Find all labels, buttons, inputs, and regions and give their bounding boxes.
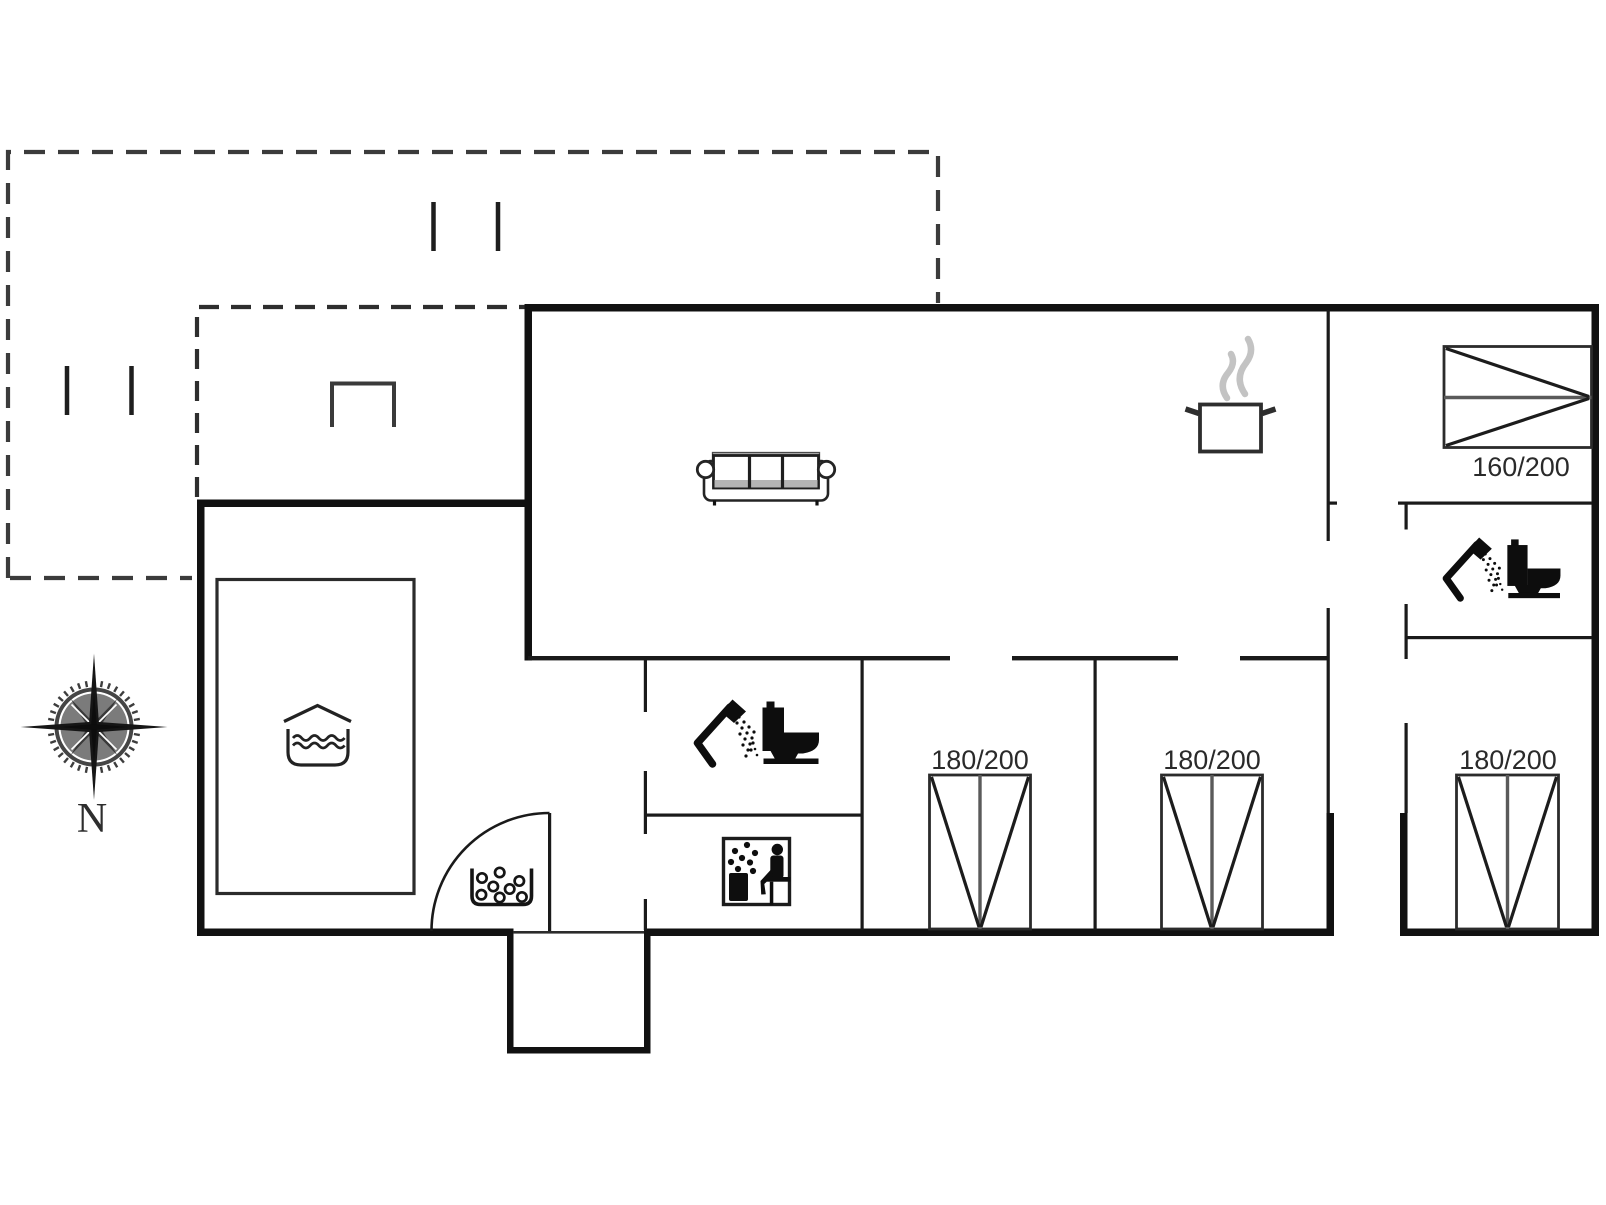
svg-text:180/200: 180/200 <box>1459 745 1557 775</box>
svg-text:180/200: 180/200 <box>1163 745 1261 775</box>
svg-text:180/200: 180/200 <box>931 745 1029 775</box>
svg-text:160/200: 160/200 <box>1472 452 1570 482</box>
svg-text:N: N <box>77 796 107 842</box>
